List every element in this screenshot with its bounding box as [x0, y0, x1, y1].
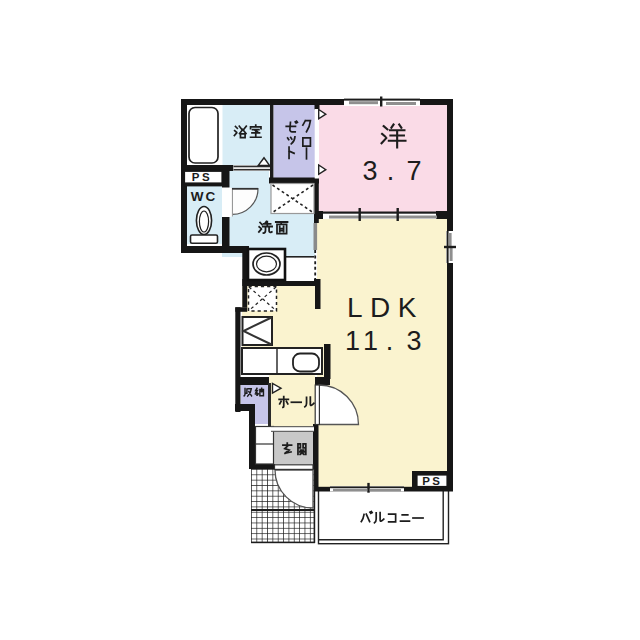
svg-text:.: . — [386, 326, 394, 356]
svg-text:WC: WC — [191, 189, 218, 204]
svg-text:.: . — [387, 156, 395, 186]
svg-text:PS: PS — [192, 171, 213, 183]
svg-text:PS: PS — [422, 475, 442, 487]
svg-text:7: 7 — [406, 156, 421, 186]
svg-text:1: 1 — [363, 326, 378, 356]
svg-text:3: 3 — [406, 326, 421, 356]
svg-text:1: 1 — [345, 326, 360, 356]
svg-text:LDK: LDK — [347, 292, 424, 323]
svg-text:3: 3 — [362, 156, 377, 186]
